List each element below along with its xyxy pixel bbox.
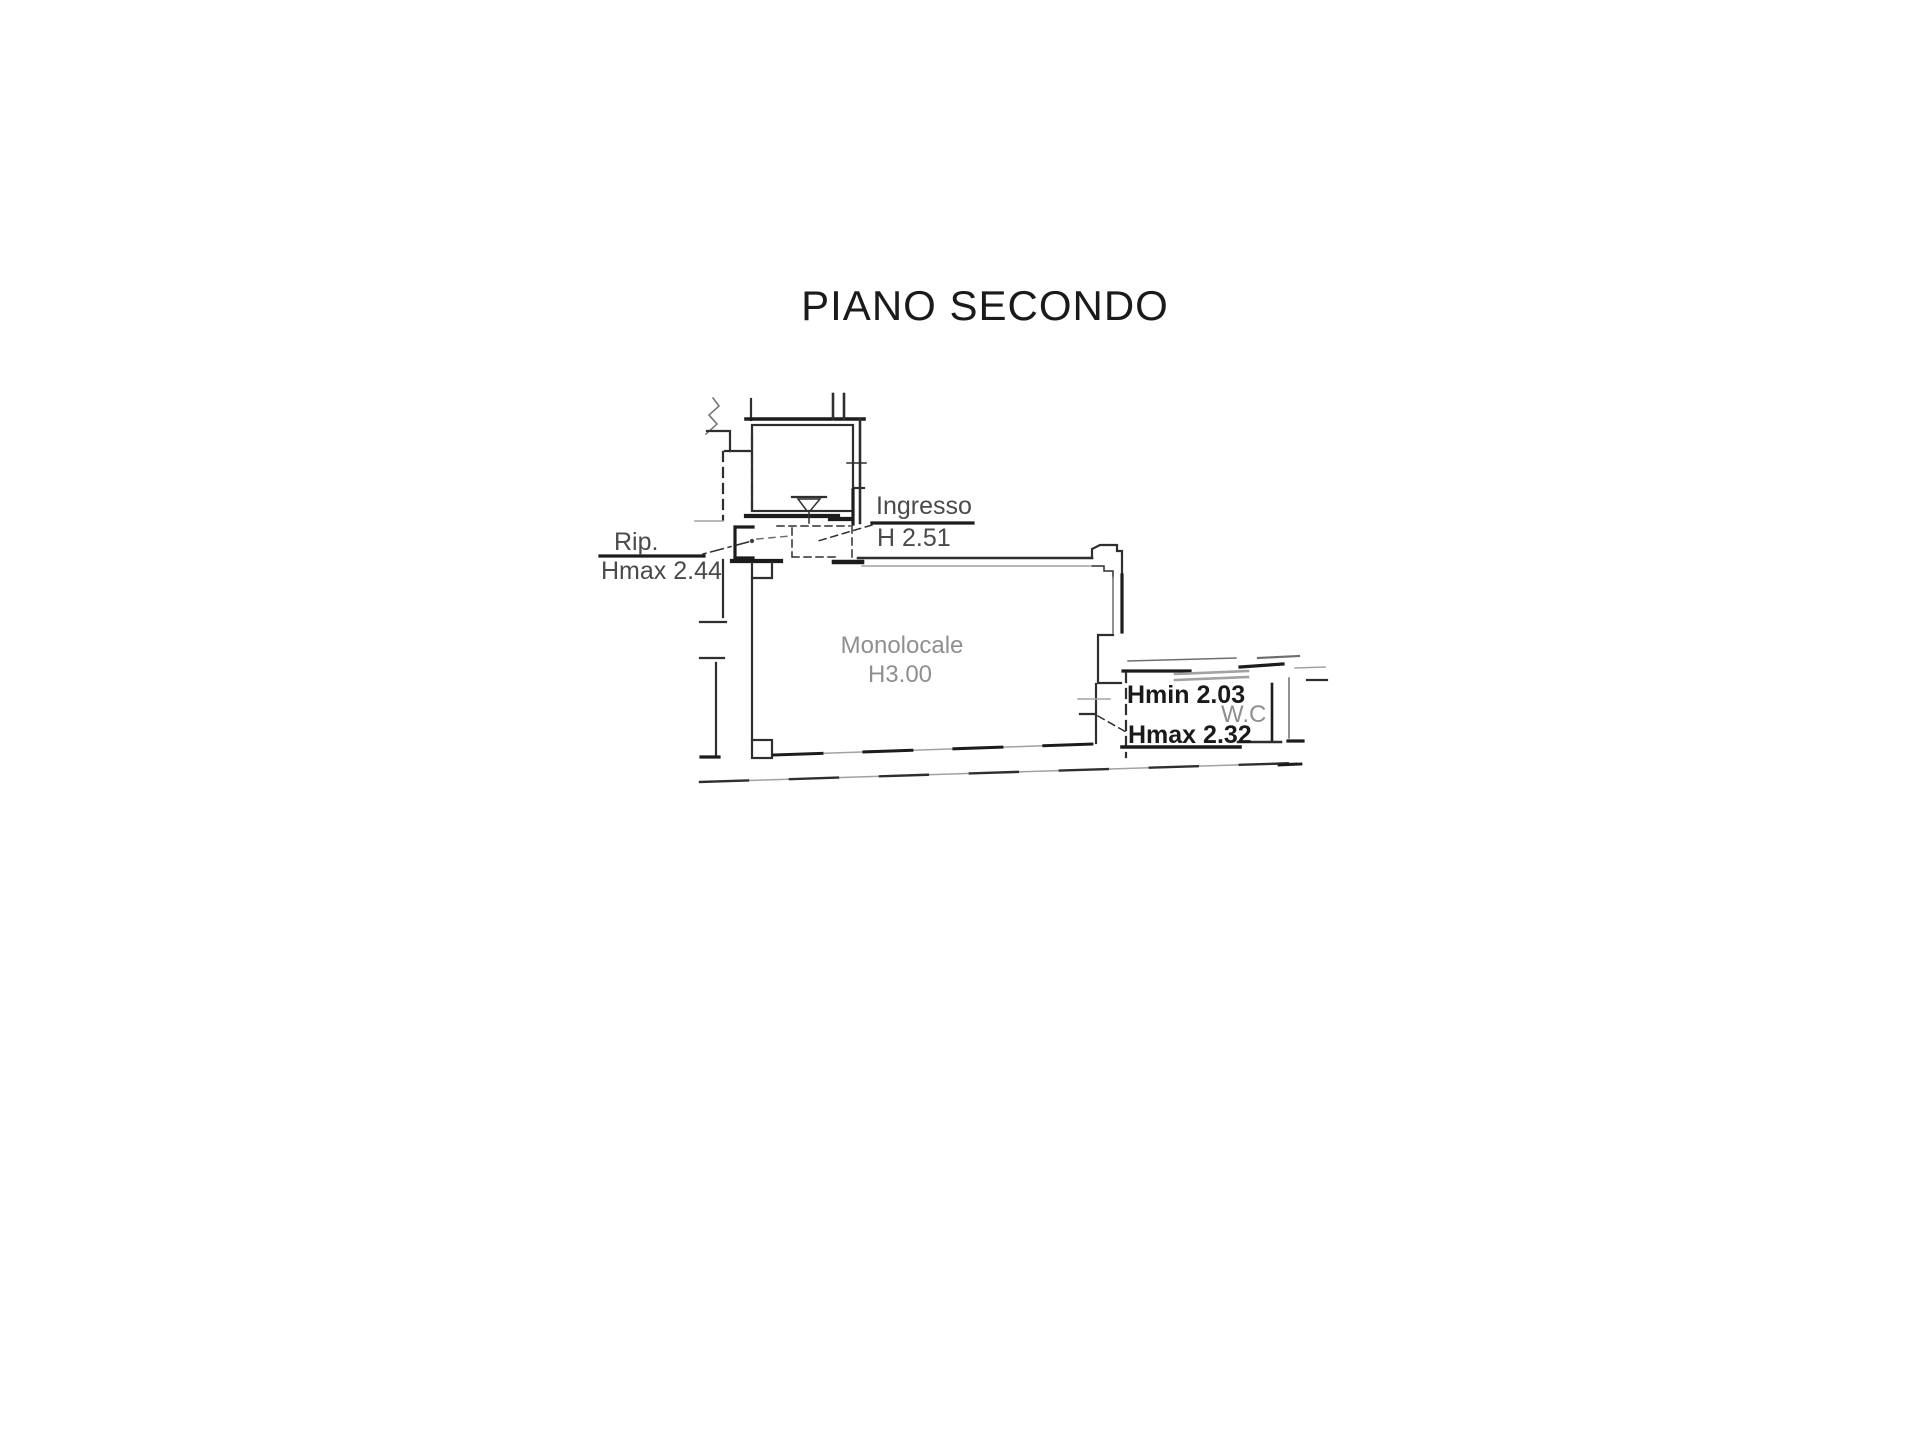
floor-plan-drawing: PIANO SECONDO Ingresso H 2.51 Rip. Hmax …: [0, 0, 1920, 1430]
storage-height: Hmax 2.44: [601, 557, 722, 585]
page-title: PIANO SECONDO: [801, 282, 1169, 329]
hmax-leader-line: [1098, 716, 1126, 732]
rip-leader-line: [703, 541, 752, 554]
main-room-height: H3.00: [868, 661, 932, 688]
break-mark: [706, 398, 719, 434]
pillar-profile: [1092, 545, 1122, 577]
entry-height: H 2.51: [877, 524, 951, 552]
wc-height-max: Hmax 2.32: [1128, 721, 1252, 749]
window-double-line: [1175, 677, 1248, 680]
ingresso-leader-line: [818, 525, 872, 541]
leader-dot: [750, 539, 754, 543]
terrace-edge-line: [700, 763, 1301, 782]
plan-texts: PIANO SECONDO Ingresso H 2.51 Rip. Hmax …: [601, 282, 1266, 749]
break-line-and-upper-wall: [695, 398, 752, 521]
wall-block: [752, 740, 772, 758]
main-room-label: Monolocale: [841, 632, 964, 659]
storage-label: Rip.: [614, 528, 658, 556]
entry-label: Ingresso: [876, 492, 972, 520]
exterior-wall-west: [700, 560, 726, 757]
entry-room-outline: [746, 394, 866, 524]
